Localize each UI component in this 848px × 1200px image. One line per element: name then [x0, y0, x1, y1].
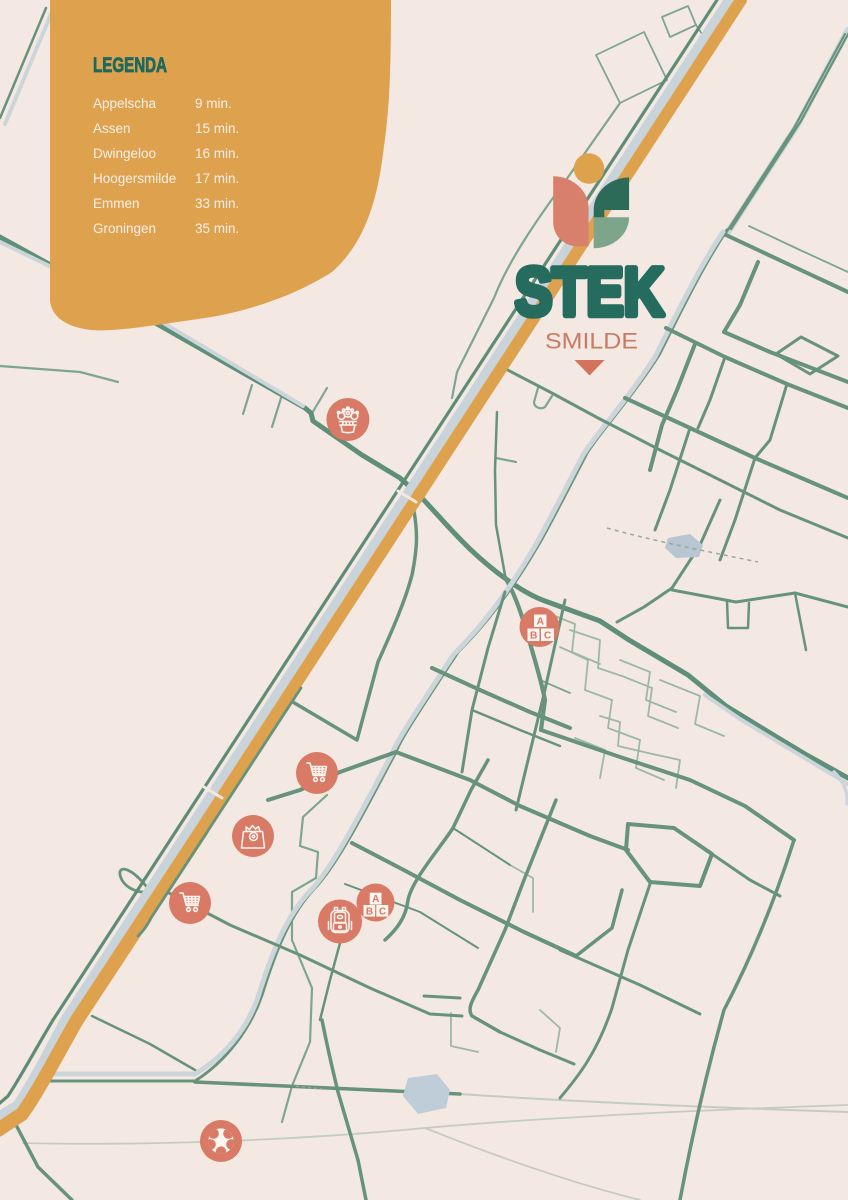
svg-text:LEGENDA: LEGENDA [93, 54, 167, 77]
svg-text:35 min.: 35 min. [195, 221, 239, 236]
svg-text:A: A [537, 616, 545, 628]
svg-text:SMILDE: SMILDE [545, 329, 638, 354]
svg-text:Dwingeloo: Dwingeloo [93, 146, 156, 161]
svg-text:B: B [366, 907, 373, 918]
svg-text:16 min.: 16 min. [195, 146, 239, 161]
svg-text:C: C [544, 630, 552, 642]
svg-text:Emmen: Emmen [93, 196, 140, 211]
svg-text:Hoogersmilde: Hoogersmilde [93, 171, 176, 186]
svg-text:C: C [379, 907, 386, 918]
svg-text:9 min.: 9 min. [195, 96, 232, 111]
svg-text:Assen: Assen [93, 121, 131, 136]
svg-text:STEK: STEK [515, 254, 664, 330]
svg-text:A: A [372, 894, 379, 905]
svg-text:B: B [530, 630, 538, 642]
svg-text:33 min.: 33 min. [195, 196, 239, 211]
svg-text:Groningen: Groningen [93, 221, 156, 236]
svg-text:15 min.: 15 min. [195, 121, 239, 136]
svg-text:17 min.: 17 min. [195, 171, 239, 186]
svg-text:Appelscha: Appelscha [93, 96, 157, 111]
